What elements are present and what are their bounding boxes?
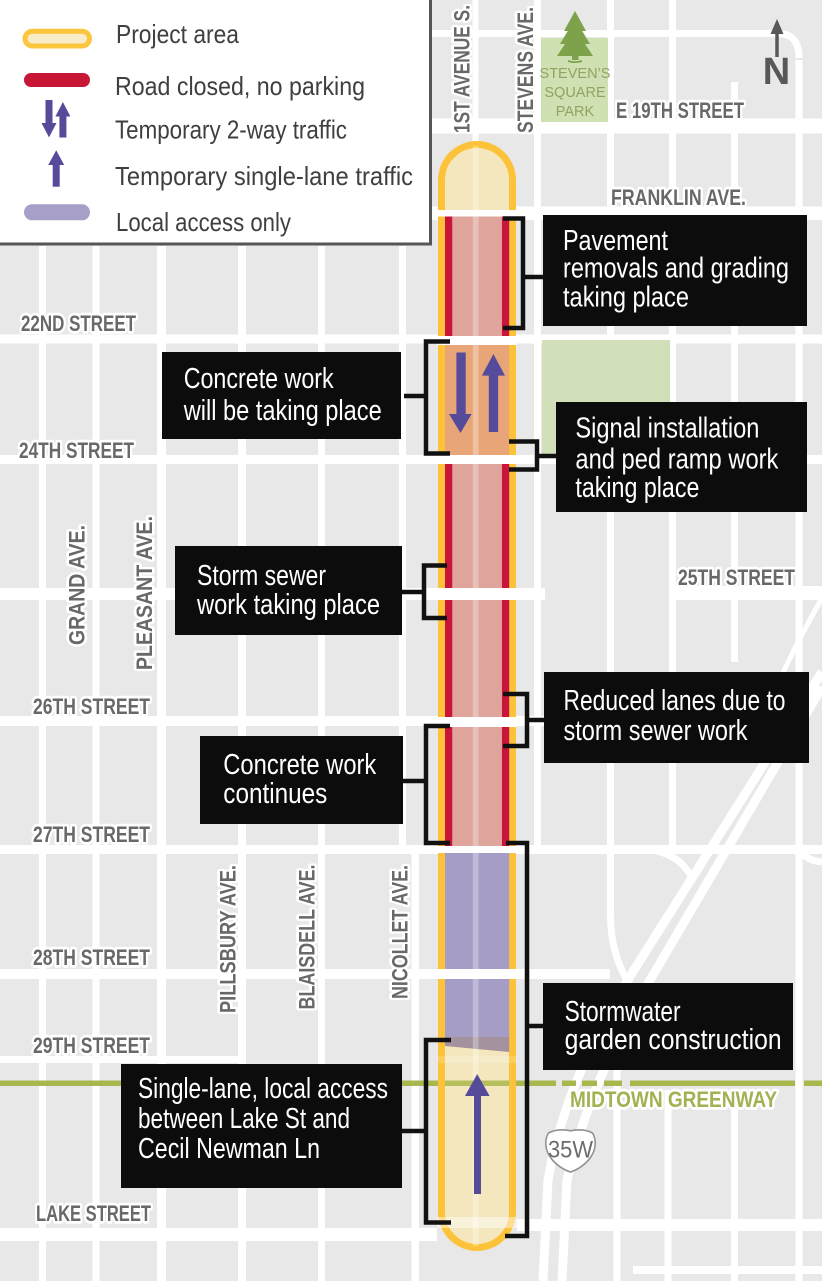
svg-text:28TH STREET: 28TH STREET [33,945,150,970]
svg-text:24TH STREET: 24TH STREET [19,438,134,463]
svg-text:PILLSBURY AVE.: PILLSBURY AVE. [216,865,241,1013]
svg-text:MIDTOWN GREENWAY: MIDTOWN GREENWAY [570,1087,777,1112]
svg-text:taking place: taking place [563,282,689,314]
svg-text:Temporary single-lane traffic: Temporary single-lane traffic [115,161,413,191]
svg-text:work taking place: work taking place [196,589,380,621]
svg-text:garden construction: garden construction [565,1024,782,1056]
svg-text:BLAISDELL AVE.: BLAISDELL AVE. [295,865,320,1010]
svg-text:between Lake St and: between Lake St and [138,1103,350,1135]
svg-text:29TH STREET: 29TH STREET [33,1033,150,1058]
svg-text:STEVENS AVE.: STEVENS AVE. [513,7,538,133]
svg-text:PLEASANT AVE.: PLEASANT AVE. [132,516,157,670]
svg-text:Signal installation: Signal installation [575,413,759,445]
svg-text:GRAND AVE.: GRAND AVE. [65,525,90,645]
svg-text:SQUARE: SQUARE [544,85,606,101]
svg-text:E 19TH STREET: E 19TH STREET [616,98,744,123]
svg-text:Concrete work: Concrete work [184,363,334,395]
svg-text:removals and grading: removals and grading [563,253,789,285]
svg-text:storm sewer work: storm sewer work [564,715,748,747]
svg-text:N: N [763,51,790,93]
svg-text:Reduced lanes due to: Reduced lanes due to [564,685,786,717]
svg-text:22ND STREET: 22ND STREET [21,311,136,336]
svg-text:1ST AVENUE S.: 1ST AVENUE S. [450,5,475,133]
svg-text:26TH STREET: 26TH STREET [33,694,150,719]
svg-text:Road closed, no parking: Road closed, no parking [115,71,365,101]
svg-text:Cecil Newman Ln: Cecil Newman Ln [138,1133,320,1165]
svg-text:continues: continues [223,778,327,810]
svg-text:PARK: PARK [556,104,595,120]
svg-text:Temporary 2-way traffic: Temporary 2-way traffic [115,115,347,145]
svg-text:STEVEN’S: STEVEN’S [540,66,611,82]
svg-text:NICOLLET AVE.: NICOLLET AVE. [388,865,413,999]
svg-text:35W: 35W [548,1137,593,1164]
svg-text:FRANKLIN AVE.: FRANKLIN AVE. [611,185,746,210]
svg-text:Storm sewer: Storm sewer [197,560,326,592]
svg-text:taking place: taking place [575,472,699,504]
svg-text:will be taking place: will be taking place [183,395,382,427]
svg-text:Single-lane, local access: Single-lane, local access [138,1073,388,1105]
svg-text:LAKE STREET: LAKE STREET [36,1201,151,1226]
svg-text:Local access only: Local access only [116,207,291,237]
svg-text:Project area: Project area [116,19,239,49]
svg-text:and ped ramp work: and ped ramp work [575,444,778,476]
svg-text:Concrete work: Concrete work [223,749,376,781]
svg-text:25TH STREET: 25TH STREET [678,565,795,590]
svg-text:27TH STREET: 27TH STREET [33,822,150,847]
